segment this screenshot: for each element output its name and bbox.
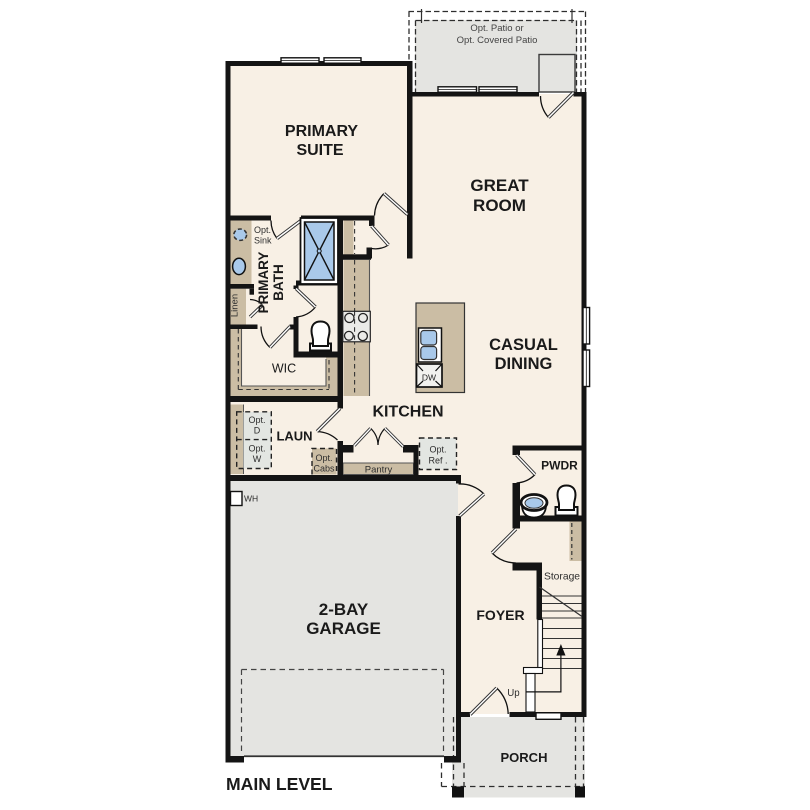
svg-text:Ref .: Ref . <box>428 456 447 466</box>
svg-text:DINING: DINING <box>495 355 553 373</box>
svg-text:MAIN LEVEL: MAIN LEVEL <box>226 774 333 794</box>
svg-text:Storage: Storage <box>544 572 580 583</box>
svg-text:D: D <box>254 426 261 436</box>
svg-text:PRIMARY: PRIMARY <box>256 252 271 314</box>
svg-text:SUITE: SUITE <box>296 142 343 159</box>
svg-text:GREAT: GREAT <box>470 176 529 195</box>
svg-text:DW: DW <box>422 373 436 383</box>
svg-text:WIC: WIC <box>272 362 296 376</box>
svg-text:PRIMARY: PRIMARY <box>285 123 359 140</box>
svg-text:Opt. Patio or: Opt. Patio or <box>470 23 523 34</box>
svg-text:LAUN: LAUN <box>276 429 312 444</box>
svg-text:BATH: BATH <box>271 264 286 301</box>
svg-text:PORCH: PORCH <box>501 750 548 765</box>
svg-text:WH: WH <box>244 494 258 504</box>
svg-text:Up: Up <box>507 688 519 699</box>
svg-text:Opt.: Opt. <box>315 453 332 463</box>
svg-text:PWDR: PWDR <box>541 459 578 473</box>
svg-text:ROOM: ROOM <box>473 196 526 215</box>
svg-text:Opt.: Opt. <box>248 415 265 425</box>
svg-text:Opt.: Opt. <box>248 444 265 454</box>
svg-text:Pantry: Pantry <box>365 465 393 476</box>
svg-text:2-BAY: 2-BAY <box>319 600 369 619</box>
svg-text:GARAGE: GARAGE <box>306 619 381 638</box>
svg-text:KITCHEN: KITCHEN <box>372 404 443 421</box>
svg-text:Opt.: Opt. <box>429 445 446 455</box>
svg-text:Opt. Covered Patio: Opt. Covered Patio <box>457 35 538 46</box>
svg-text:CASUAL: CASUAL <box>489 336 558 354</box>
svg-text:Opt.: Opt. <box>254 225 271 235</box>
svg-text:W: W <box>253 454 262 464</box>
svg-text:Cabs: Cabs <box>313 464 335 474</box>
svg-text:FOYER: FOYER <box>476 607 524 623</box>
svg-text:Sink: Sink <box>254 236 272 246</box>
svg-text:Linen: Linen <box>230 294 241 317</box>
